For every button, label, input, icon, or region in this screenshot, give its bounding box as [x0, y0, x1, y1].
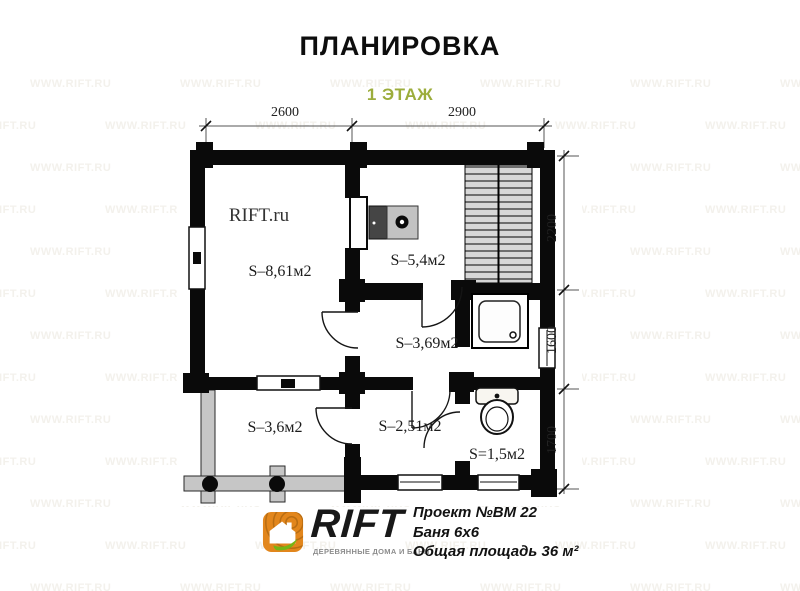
- room-label-251: S–2,51м2: [378, 418, 441, 436]
- dim-right-1600: 1600: [545, 326, 561, 354]
- dim-top-right: 2900: [448, 105, 476, 121]
- floor-subtitle: 1 ЭТАЖ: [0, 85, 800, 105]
- dim-right-2200: 2200: [545, 214, 561, 242]
- dim-right-1700: 1700: [545, 426, 561, 454]
- project-total-area: Общая площадь 36 м²: [413, 542, 578, 562]
- room-label-54: S–5,4м2: [390, 252, 445, 270]
- room-label-861: S–8,61м2: [248, 263, 311, 281]
- dim-top-left: 2600: [271, 105, 299, 121]
- room-label-369: S–3,69м2: [395, 335, 458, 353]
- room-label-36: S–3,6м2: [247, 419, 302, 437]
- page-title: ПЛАНИРОВКА: [0, 31, 800, 62]
- rift-logo-text: RIFT: [310, 503, 406, 545]
- room-label-15: S=1,5м2: [469, 446, 525, 464]
- project-number: Проект №ВМ 22: [413, 503, 578, 523]
- project-info: Проект №ВМ 22 Баня 6х6 Общая площадь 36 …: [413, 503, 578, 562]
- project-building: Баня 6х6: [413, 523, 578, 543]
- plan-brand-watermark: RIFT.ru: [229, 205, 289, 227]
- rift-logo-icon: [262, 510, 304, 554]
- floor-plan-page: WWW.RIFT.RUWWW.RIFT.RUWWW.RIFT.RUWWW.RIF…: [0, 0, 800, 591]
